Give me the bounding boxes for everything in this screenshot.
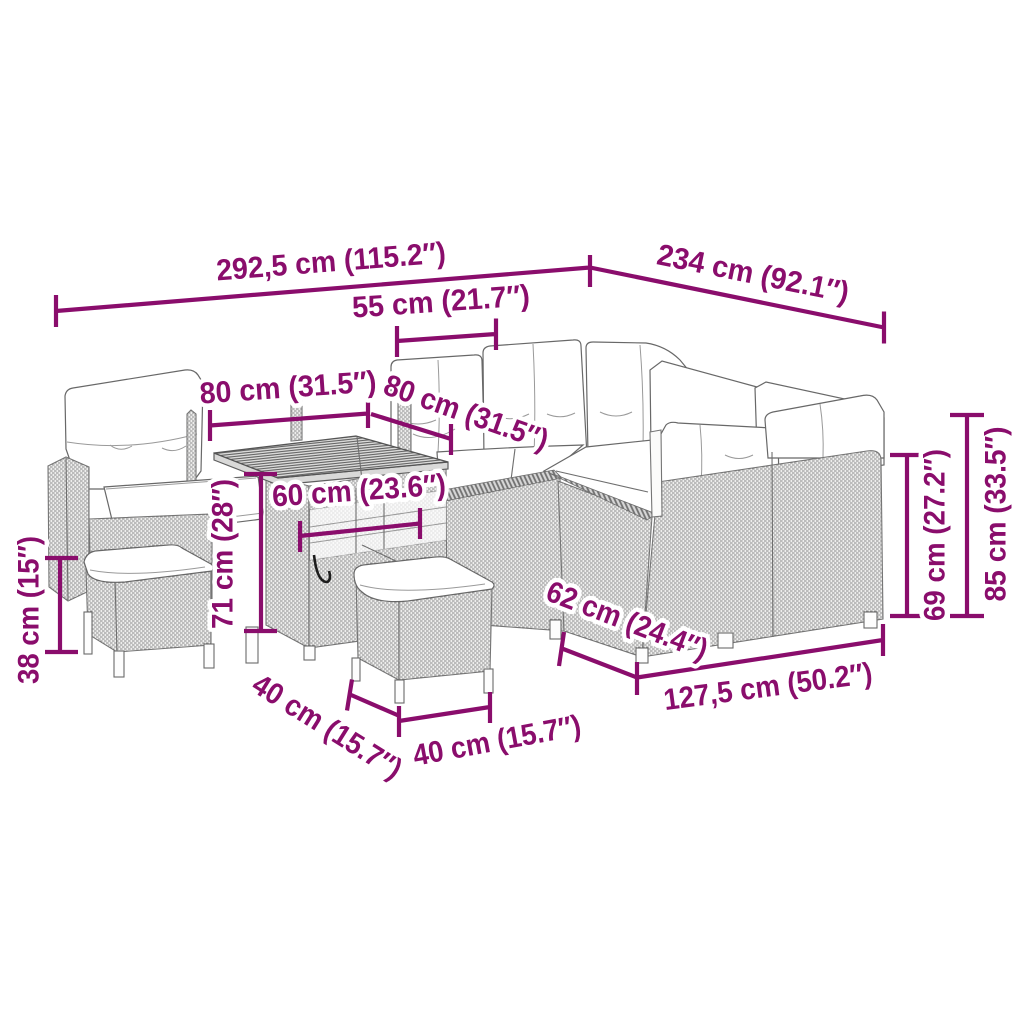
- svg-text:69 cm (27.2″): 69 cm (27.2″): [919, 449, 952, 621]
- svg-text:71 cm (28″): 71 cm (28″): [207, 479, 240, 629]
- svg-text:85 cm (33.5″): 85 cm (33.5″): [980, 427, 1013, 602]
- svg-text:38 cm (15″): 38 cm (15″): [13, 536, 46, 684]
